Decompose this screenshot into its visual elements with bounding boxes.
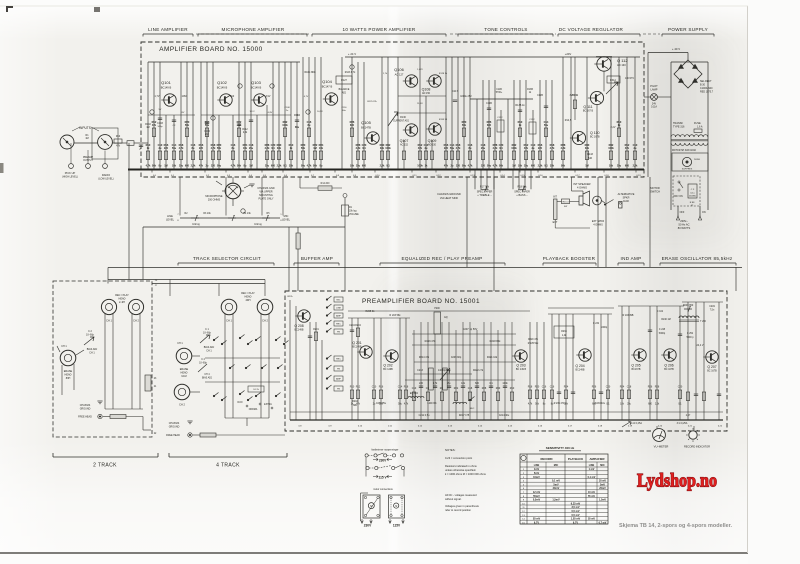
svg-text:AMPLIFIER BOARD NO. 15000: AMPLIFIER BOARD NO. 15000 [159, 46, 262, 53]
svg-text:10–60p: 10–60p [86, 334, 95, 337]
svg-text:C12B: C12B [537, 95, 543, 97]
svg-text:3 Ω 0,25A: 3 Ω 0,25A [677, 422, 688, 425]
svg-text:5000 p: 5000 p [686, 337, 694, 339]
svg-text:1M: 1M [85, 137, 88, 140]
svg-text:47k: 47k [524, 147, 529, 150]
svg-text:8u: 8u [159, 165, 162, 168]
svg-text:R127: R127 [341, 79, 347, 82]
svg-text:80 WATTS: 80 WATTS [678, 226, 691, 230]
svg-text:R143: R143 [587, 153, 593, 156]
svg-text:2u: 2u [425, 147, 428, 150]
svg-text:SUPPRES: SUPPRES [682, 169, 693, 171]
svg-text:3,9V: 3,9V [266, 96, 271, 98]
svg-text:1,6 A: 1,6 A [697, 126, 703, 129]
svg-text:25u: 25u [481, 147, 486, 150]
svg-text:L200 9%: L200 9% [427, 403, 436, 405]
svg-text:50u: 50u [487, 165, 492, 168]
svg-text:220: 220 [481, 165, 486, 168]
svg-text:50u: 50u [172, 147, 177, 150]
svg-text:BC 167 B: BC 167 B [583, 110, 594, 113]
svg-text:100k: 100k [417, 165, 423, 168]
svg-text:BC147 B: BC147 B [322, 85, 333, 89]
svg-text:1M: 1M [164, 165, 167, 168]
svg-text:680: 680 [625, 165, 630, 168]
svg-text:VU–METER: VU–METER [654, 445, 669, 449]
svg-text:56k: 56k [561, 165, 566, 168]
svg-text:GROUND: GROUND [80, 408, 91, 411]
svg-text:4,7k: 4,7k [468, 165, 473, 168]
svg-text:100k: 100k [282, 124, 288, 127]
svg-text:500p: 500p [158, 126, 164, 128]
svg-text:80u: 80u [295, 126, 300, 129]
svg-text:130 NTC: 130 NTC [625, 78, 635, 80]
svg-text:R125 22k: R125 22k [367, 101, 377, 103]
svg-text:R16: R16 [379, 386, 384, 389]
svg-text:R102: R102 [145, 124, 151, 126]
svg-text:33k: 33k [380, 147, 385, 150]
svg-text:Q 207: Q 207 [707, 365, 716, 369]
svg-text:Q105: Q105 [361, 120, 372, 125]
svg-text:AMP: AMP [336, 378, 341, 381]
svg-text:S1 2k: S1 2k [253, 389, 259, 391]
svg-text:T 200: T 200 [700, 321, 707, 323]
svg-text:AD 150: AD 150 [428, 144, 437, 147]
svg-text:8u: 8u [232, 147, 235, 150]
svg-text:1 mV: 1 mV [589, 468, 595, 471]
svg-text:55 mV: 55 mV [533, 518, 541, 521]
svg-text:20mV: 20mV [553, 487, 560, 490]
svg-text:SPEC TAPER: SPEC TAPER [477, 191, 493, 194]
svg-text:220: 220 [211, 165, 216, 168]
svg-text:0,1 mV: 0,1 mV [588, 476, 596, 479]
svg-text:R141: R141 [572, 94, 578, 97]
svg-text:PREAMPLIFIER BOARD NO. 1: PREAMPLIFIER BOARD NO. 15001 [362, 298, 480, 305]
svg-text:C14: C14 [398, 386, 403, 389]
svg-text:R24: R24 [564, 386, 569, 389]
svg-text:10k: 10k [172, 165, 177, 168]
svg-text:8u: 8u [192, 147, 195, 150]
svg-text:33k: 33k [585, 147, 590, 150]
svg-text:1,5mV: 1,5mV [599, 499, 606, 502]
svg-text:SENSITIVITY 400 Hz: SENSITIVITY 400 Hz [546, 446, 575, 450]
svg-text:R106 390k: R106 390k [304, 72, 316, 74]
svg-text:1,55 mV: 1,55 mV [571, 518, 581, 521]
svg-text:PLATE ONLY: PLATE ONLY [258, 198, 273, 201]
svg-text:OFF/ ON: OFF/ ON [673, 196, 683, 198]
svg-text:R3 10k: R3 10k [203, 213, 211, 215]
svg-text:4,7k: 4,7k [307, 165, 312, 168]
svg-text:R26: R26 [648, 386, 653, 389]
svg-text:BC149 B: BC149 B [251, 86, 262, 90]
svg-text:220: 220 [444, 147, 449, 150]
svg-text:Q104: Q104 [322, 79, 333, 84]
svg-text:10mV: 10mV [533, 476, 540, 479]
svg-text:56k: 56k [499, 165, 504, 168]
svg-text:REC: REC [336, 359, 341, 361]
svg-text:BC167B: BC167B [632, 368, 641, 371]
svg-text:1000p: 1000p [601, 327, 608, 329]
svg-text:R202: R202 [352, 401, 358, 403]
svg-text:2,2k: 2,2k [561, 147, 566, 150]
svg-text:RECORD INDICATOR: RECORD INDICATOR [684, 445, 710, 449]
svg-text:R204: R204 [355, 325, 361, 327]
svg-text:BC 149B: BC 149B [383, 368, 393, 371]
svg-text:R 203 56k: R 203 56k [390, 314, 402, 317]
svg-text:25u: 25u [617, 165, 622, 168]
svg-text:10k log: 10k log [349, 211, 357, 213]
svg-text:R13B: R13B [527, 89, 533, 91]
svg-text:100k: 100k [502, 382, 508, 385]
svg-text:47k: 47k [444, 165, 449, 168]
svg-text:R18 94k: R18 94k [518, 186, 528, 189]
svg-text:0,8V: 0,8V [268, 112, 273, 114]
svg-text:0,5 mV: 0,5 mV [571, 510, 579, 513]
svg-text:4,7k: 4,7k [550, 147, 555, 150]
svg-text:25u: 25u [524, 165, 529, 168]
svg-text:DC VOLTAGE REGULATOR: DC VOLTAGE REGULATOR [559, 27, 624, 32]
svg-text:BC 167B: BC 167B [707, 370, 717, 373]
svg-text:CH 4: CH 4 [204, 374, 210, 376]
svg-text:R28: R28 [482, 387, 487, 390]
svg-text:BC149B: BC149B [576, 369, 585, 372]
svg-text:BC149 B: BC149 B [161, 86, 172, 90]
svg-text:7,5n: 7,5n [710, 310, 715, 312]
svg-text:1M: 1M [512, 165, 515, 168]
svg-text:2u: 2u [206, 165, 209, 168]
svg-text:CH 1: CH 1 [177, 342, 183, 345]
svg-text:4,7k: 4,7k [211, 147, 216, 150]
svg-text:All DC - voltages measured: All DC - voltages measured [445, 493, 477, 497]
svg-text:2,2k: 2,2k [277, 165, 282, 168]
svg-text:680: 680 [475, 382, 480, 385]
svg-text:+ 40 V: + 40 V [672, 47, 680, 51]
svg-text:4 OHMS: 4 OHMS [577, 186, 587, 190]
svg-text:R13B 1k: R13B 1k [515, 104, 525, 107]
svg-text:5700+: 5700+ [496, 92, 503, 94]
svg-text:0-23 = connection point: 0-23 = connection point [445, 456, 472, 460]
svg-text:680: 680 [185, 165, 190, 168]
svg-text:25u: 25u [265, 165, 270, 168]
svg-text:LEVEL: LEVEL [166, 218, 175, 222]
svg-text:RADIO: RADIO [102, 173, 110, 177]
svg-text:Q101: Q101 [161, 80, 172, 85]
svg-text:ADJ: ADJ [342, 92, 346, 95]
svg-text:R31A: R31A [610, 79, 616, 82]
svg-text:4,7k: 4,7k [493, 165, 498, 168]
svg-text:2u: 2u [634, 147, 637, 150]
svg-text:10k: 10k [350, 165, 355, 168]
svg-text:220: 220 [456, 165, 461, 168]
svg-text:Q 204: Q 204 [575, 364, 584, 368]
svg-text:24,4 V: 24,4 V [697, 344, 704, 347]
svg-text:ON: ON [702, 211, 706, 214]
svg-text:20 mV: 20 mV [599, 480, 606, 483]
svg-text:2,2V: 2,2V [611, 126, 616, 129]
svg-text:2–9H: 2–9H [119, 301, 125, 304]
svg-text:5mV: 5mV [534, 472, 540, 475]
svg-text:R 88: R 88 [690, 202, 695, 204]
svg-text:RECORD: RECORD [540, 457, 552, 461]
svg-text:2,2k: 2,2k [191, 165, 196, 168]
svg-text:230V: 230V [364, 524, 372, 528]
svg-text:BIAS ADJ: BIAS ADJ [202, 377, 212, 380]
svg-text:1M: 1M [249, 165, 252, 168]
svg-text:100k: 100k [608, 147, 614, 150]
svg-text:4DH: 4DH [245, 299, 250, 302]
svg-text:25u: 25u [179, 165, 184, 168]
svg-text:R133 54: R133 54 [439, 119, 448, 121]
svg-text:R220 47k: R220 47k [528, 339, 539, 341]
svg-text:50u: 50u [450, 147, 455, 150]
svg-text:BC147B: BC147B [361, 126, 371, 130]
svg-text:R218 82k: R218 82k [490, 340, 501, 343]
svg-text:10k: 10k [609, 165, 614, 168]
svg-text:REC: REC [336, 324, 341, 326]
svg-text:0,5 mV: 0,5 mV [571, 514, 579, 517]
svg-text:R205 3k: R205 3k [366, 310, 376, 313]
svg-text:+24V: +24V [565, 52, 572, 56]
svg-text:2u: 2u [159, 147, 162, 150]
svg-text:R221 10k: R221 10k [487, 356, 498, 359]
svg-text:k = 1000 ohms M = 1000 000: k = 1000 ohms M = 1000 000 ohms [445, 472, 487, 476]
svg-text:CH 2: CH 2 [179, 404, 185, 407]
svg-text:C20: C20 [606, 386, 611, 389]
svg-text:4,7V: 4,7V [304, 96, 309, 98]
svg-text:R123 6,7k: R123 6,7k [345, 72, 356, 74]
svg-text:16,5V: 16,5V [317, 111, 323, 113]
svg-text:R201: R201 [313, 329, 319, 331]
svg-text:Q 110: Q 110 [590, 131, 600, 135]
svg-text:MICROPHONE AMPLIFIER: MICROPHONE AMPLIFIER [222, 27, 285, 32]
svg-text:50u: 50u [205, 124, 210, 127]
svg-text:U1M: U1M [181, 375, 186, 378]
svg-text:2 TRACK: 2 TRACK [93, 463, 117, 469]
svg-text:10M: 10M [182, 95, 187, 98]
svg-text:10k: 10k [518, 165, 523, 168]
svg-text:0,1: 0,1 [271, 147, 275, 150]
svg-text:C249: C249 [709, 306, 715, 308]
svg-text:C11C: C11C [497, 117, 503, 119]
svg-text:TYPE 316: TYPE 316 [673, 126, 685, 129]
svg-text:R17 97k: R17 97k [480, 186, 490, 189]
svg-text:+ BASS −: + BASS − [516, 193, 528, 197]
svg-text:47k: 47k [625, 147, 630, 150]
svg-text:C10: C10 [412, 387, 417, 390]
svg-text:C 232: C 232 [593, 323, 600, 325]
svg-text:C103: C103 [157, 122, 163, 125]
svg-text:55 mV: 55 mV [588, 495, 595, 498]
svg-text:6,7 mV: 6,7 mV [599, 521, 607, 524]
svg-text:10 mV: 10 mV [588, 491, 595, 494]
svg-text:0,1: 0,1 [283, 165, 287, 168]
svg-text:BALANCE: BALANCE [339, 88, 350, 91]
svg-text:220: 220 [419, 382, 424, 385]
svg-text:10 WATTS POWER AMPLIFIER: 10 WATTS POWER AMPLIFIER [342, 27, 415, 32]
svg-text:200 OHMS: 200 OHMS [208, 199, 221, 202]
svg-text:0,1: 0,1 [499, 147, 503, 150]
svg-text:INT SPEAKER: INT SPEAKER [573, 182, 590, 186]
svg-text:LEVEL: LEVEL [282, 218, 291, 222]
svg-text:100k: 100k [385, 147, 391, 150]
svg-text:LINE: LINE [589, 464, 595, 467]
svg-text:R12: R12 [356, 386, 361, 389]
svg-text:115 V: 115 V [379, 476, 388, 480]
svg-text:INT: INT [553, 196, 557, 198]
svg-text:POWER SUPPLY: POWER SUPPLY [668, 27, 708, 32]
svg-text:EQ ADJ: EQ ADJ [410, 392, 418, 395]
svg-text:BC149 B: BC149 B [217, 86, 228, 90]
svg-text:motor connections: motor connections [373, 488, 393, 491]
svg-text:56k: 56k [301, 147, 306, 150]
svg-text:R14,5: R14,5 [565, 119, 572, 122]
svg-text:M: M [395, 505, 397, 508]
svg-text:680: 680 [271, 165, 276, 168]
svg-text:2,2k: 2,2k [265, 147, 270, 150]
svg-text:5000p: 5000p [659, 333, 666, 335]
svg-text:1mV: 1mV [534, 468, 540, 471]
svg-text:10k: 10k [319, 147, 324, 150]
svg-text:56k: 56k [217, 147, 222, 150]
svg-text:C213: C213 [417, 369, 423, 372]
svg-text:C117: C117 [452, 90, 458, 93]
svg-text:1000u 25V: 1000u 25V [460, 95, 472, 98]
svg-text:R217 175: R217 175 [459, 414, 470, 417]
svg-text:C 102: C 102 [657, 311, 664, 313]
svg-text:R112: R112 [242, 129, 248, 131]
svg-text:SPEC TAPER: SPEC TAPER [514, 191, 530, 194]
svg-text:Q102: Q102 [217, 80, 228, 85]
svg-text:LINE: LINE [534, 464, 540, 467]
svg-text:47k: 47k [418, 147, 423, 150]
svg-text:CURRENT ADJ: CURRENT ADJ [393, 120, 409, 123]
svg-text:0,1 mV: 0,1 mV [552, 480, 560, 483]
svg-text:8u: 8u [469, 147, 472, 150]
svg-text:230V: 230V [379, 458, 387, 462]
svg-text:55mV: 55mV [533, 495, 540, 498]
svg-text:TRACK SELECTOR CIRCUIT: TRACK SELECTOR CIRCUIT [193, 256, 261, 261]
svg-text:C11B: C11B [486, 102, 492, 105]
svg-text:AMPLIFIER: AMPLIFIER [589, 457, 604, 461]
svg-text:C110: C110 [294, 114, 300, 117]
svg-text:refer to record position: refer to record position [445, 508, 472, 512]
svg-text:100k: 100k [511, 147, 517, 150]
svg-text:NOTES:: NOTES: [445, 448, 456, 452]
svg-text:220: 220 [164, 147, 169, 150]
svg-text:2,47: 2,47 [686, 415, 691, 417]
svg-text:NORMA: NORMA [249, 408, 258, 411]
svg-text:0,1: 0,1 [362, 147, 366, 150]
svg-text:C207 1p 50V: C207 1p 50V [463, 328, 478, 331]
svg-text:2u: 2u [532, 147, 535, 150]
svg-text:Q 206: Q 206 [664, 364, 673, 368]
svg-text:INPUTS: INPUTS [79, 126, 91, 130]
svg-text:LAMP: LAMP [650, 88, 657, 92]
svg-text:47k: 47k [152, 124, 157, 127]
svg-text:3,5 mV: 3,5 mV [571, 506, 579, 509]
svg-text:PLAYBACK: PLAYBACK [568, 457, 583, 461]
svg-text:MIC: MIC [336, 300, 340, 302]
svg-text:1k Ω 0,25A: 1k Ω 0,25A [630, 422, 642, 425]
svg-text:VIA HEAT SINK: VIA HEAT SINK [440, 196, 458, 200]
svg-text:2,2k: 2,2k [380, 165, 385, 168]
svg-text:8u: 8u [320, 165, 323, 168]
svg-text:0,1: 0,1 [544, 165, 548, 168]
svg-text:C11B: C11B [496, 89, 502, 91]
svg-text:AD 130: AD 130 [617, 63, 626, 67]
svg-text:IND AMP: IND AMP [621, 256, 642, 261]
svg-text:Q 202: Q 202 [383, 364, 392, 368]
svg-text:LINE: LINE [167, 214, 173, 218]
svg-text:AC 127: AC 127 [395, 73, 404, 77]
svg-text:56k: 56k [462, 124, 467, 127]
svg-text:R24: R24 [620, 386, 625, 389]
svg-text:1M: 1M [313, 147, 316, 150]
svg-text:1,3 V: 1,3 V [249, 111, 255, 113]
svg-text:115V: 115V [393, 524, 401, 528]
svg-text:8u: 8u [244, 165, 247, 168]
svg-text:Q 203: Q 203 [516, 364, 525, 368]
svg-text:5mV: 5mV [553, 483, 559, 486]
svg-text:R234: R234 [561, 331, 567, 333]
svg-text:680: 680 [487, 124, 492, 127]
svg-text:33k: 33k [277, 147, 282, 150]
svg-text:C211 0,5u: C211 0,5u [419, 414, 431, 417]
svg-text:680: 680 [531, 165, 536, 168]
svg-text:6,7V: 6,7V [534, 521, 539, 524]
svg-text:4,7k: 4,7k [456, 147, 461, 150]
svg-text:Q 112: Q 112 [617, 58, 628, 63]
svg-text:R10: R10 [230, 96, 235, 98]
svg-text:C116: C116 [341, 107, 347, 109]
svg-text:R 103 39B: R 103 39B [623, 315, 634, 317]
svg-text:C18: C18 [627, 386, 632, 389]
svg-text:2,2k: 2,2k [538, 165, 543, 168]
svg-text:CHASSIS GROUND: CHASSIS GROUND [437, 192, 461, 196]
svg-text:4,7k: 4,7k [433, 382, 438, 385]
svg-text:6,7V: 6,7V [573, 521, 578, 524]
svg-text:AC 152: AC 152 [400, 144, 409, 147]
svg-text:C233 10u: C233 10u [595, 403, 606, 405]
svg-text:33k: 33k [289, 165, 294, 168]
svg-text:+ TREBLE −: + TREBLE − [477, 193, 492, 197]
svg-text:C105: C105 [204, 131, 210, 133]
svg-text:546: 546 [588, 157, 593, 160]
svg-text:56k: 56k [237, 165, 242, 168]
svg-text:0,1: 0,1 [386, 165, 390, 168]
svg-text:R20: R20 [535, 386, 540, 389]
svg-text:N1/80: N1/80 [694, 159, 701, 161]
svg-text:2,2k: 2,2k [493, 147, 498, 150]
svg-text:AD 150: AD 150 [422, 92, 431, 95]
svg-text:unless otherwise specified.: unless otherwise specified. [445, 468, 476, 472]
svg-text:OUTPUT: OUTPUT [83, 159, 93, 162]
svg-text:C16: C16 [550, 386, 555, 389]
svg-text:EQ: EQ [444, 317, 448, 319]
svg-text:1,7V: 1,7V [155, 95, 160, 98]
svg-text:AMP: AMP [336, 315, 341, 318]
svg-text:Skjema TB 14, 2-spors og 4-spo: Skjema TB 14, 2-spors og 4-spors modelle… [619, 523, 733, 529]
svg-text:R4 13k: R4 13k [243, 213, 251, 215]
svg-text:BC149B: BC149B [353, 346, 362, 349]
svg-text:2,2k: 2,2k [633, 165, 638, 168]
svg-text:Q103: Q103 [251, 80, 262, 85]
svg-text:25u: 25u [356, 165, 361, 168]
svg-text:REC: REC [470, 408, 475, 410]
svg-text:220: 220 [538, 147, 543, 150]
svg-text:50u: 50u [544, 124, 549, 127]
svg-text:VOLUME: VOLUME [349, 214, 359, 216]
svg-text:fasthetener nyspenninger: fasthetener nyspenninger [372, 449, 399, 452]
